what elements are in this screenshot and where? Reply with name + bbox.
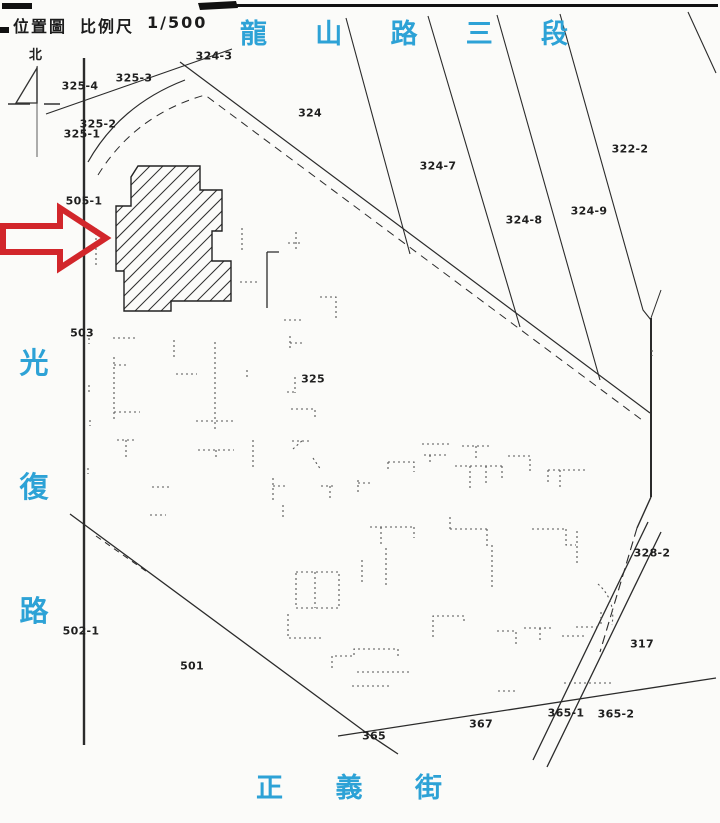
right-tick [651,290,661,318]
hatched-building-outline [116,166,231,311]
building-outline-mid-b [196,336,321,470]
street-top-char: 三 [466,12,493,51]
street-top-char: 龍 [240,12,267,51]
parcel-label-325: 325 [301,373,325,386]
street-top-char: 路 [391,12,418,51]
parcel-label-324-7: 324-7 [420,160,457,173]
parcel-label-502-1: 502-1 [63,625,100,638]
scale-label: 比例尺 [80,13,134,37]
boundary-322-2 [560,14,651,320]
map-type-title: 位置圖 [13,13,67,37]
parcel-label-322-2: 322-2 [612,143,649,156]
annex-wall [267,252,279,308]
parcel-label-501: 501 [180,660,204,673]
street-left-char: 復 [12,464,56,506]
parcel-label-325-1: 325-1 [64,128,101,141]
parcel-label-503: 503 [70,327,94,340]
hatched-building [0,150,413,330]
parcel-label-325-3: 325-3 [116,72,153,85]
parcel-label-365-1: 365-1 [548,707,585,720]
road-and-boundary-lines [46,12,716,767]
parcel-label-505-1: 505-1 [66,195,103,208]
street-bottom-char: 街 [415,766,442,805]
parcel-label-365-2: 365-2 [598,708,635,721]
street-bottom-char: 正 [256,766,283,805]
street-bottom-char: 義 [336,766,363,805]
parcel-label-328-2: 328-2 [634,547,671,560]
map-header: 位置圖 比例尺 1/500 [13,13,207,37]
parcel-label-365: 365 [362,730,386,743]
building-outlines [88,228,652,691]
building-outline-lower-b [370,456,588,590]
parcel-label-367: 367 [469,718,493,731]
bottom-left-boundary [70,514,398,754]
scale-value: 1/500 [147,13,207,37]
boundary-328-2-lower [600,528,637,652]
parcel-label-324-8: 324-8 [506,214,543,227]
parcel-label-324: 324 [298,107,322,120]
bottom-right-boundary [338,678,716,736]
street-top-char: 段 [541,12,568,51]
building-outline-near-subject [96,228,336,320]
building-outline-lower-d [332,584,613,691]
dashed-setback-line [98,95,642,420]
parcel-label-324-9: 324-9 [571,205,608,218]
long-diagonal-boundary [180,62,650,413]
building-outline-lower-a [273,439,492,520]
parcel-label-324-3: 324-3 [196,50,233,63]
hatch-lines [0,150,413,330]
street-name-bottom: 正 義 街 [256,766,442,805]
map-noise-ticks [88,338,652,474]
street-left-char: 路 [12,588,56,630]
building-outline-lower-c [288,560,601,646]
north-label: 北 [29,44,42,63]
street-left-char: 光 [12,340,56,382]
street-name-left: 光 復 路 [12,340,56,630]
parcel-label-317: 317 [630,638,654,651]
building-outline-mid-a [113,338,197,515]
parcel-label-325-4: 325-4 [62,80,99,93]
boundary-328-2-upper [637,497,651,528]
location-map-page: 位置圖 比例尺 1/500 北 龍 山 路 三 段 光 復 路 正 義 街 32… [0,0,720,823]
street-top-char: 山 [315,12,342,51]
bottom-left-dashes [96,536,150,574]
red-arrow-icon [3,208,106,268]
street-name-top: 龍 山 路 三 段 [240,12,568,51]
